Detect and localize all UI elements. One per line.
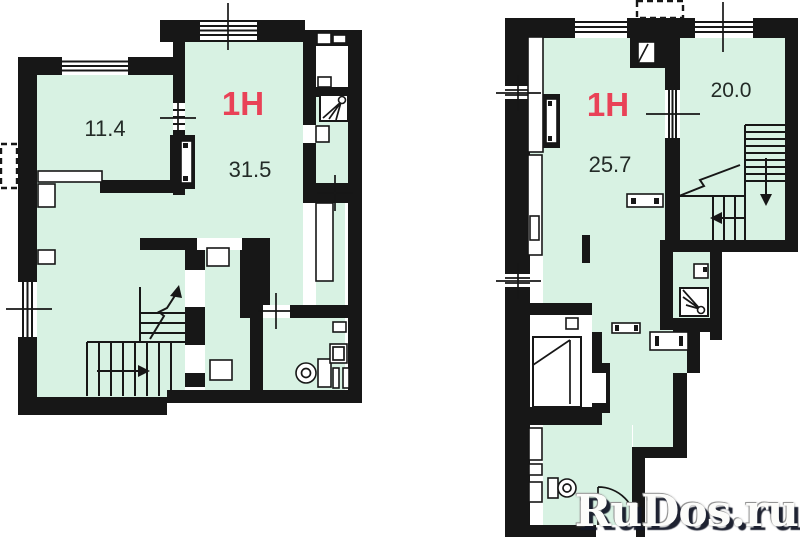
floor-plan-canvas: 1H 11.4 31.5 <box>0 0 800 538</box>
radiator-icon <box>529 428 542 460</box>
watermark-logo: RuDos.ru <box>575 490 798 534</box>
cabinet-icon <box>38 250 55 264</box>
cabinet-icon <box>333 368 339 388</box>
sink-icon <box>210 360 232 380</box>
cabinet-icon <box>38 184 55 207</box>
shower-icon <box>320 95 348 121</box>
bed-icon <box>533 337 581 407</box>
unit-label: 1H <box>222 85 264 122</box>
dashed-annex-icon <box>1 144 17 188</box>
radiator-icon <box>529 464 542 475</box>
wardrobe-icon <box>528 37 543 152</box>
cabinet-icon <box>38 171 102 182</box>
door-opening <box>303 125 316 143</box>
door-opening <box>185 345 205 373</box>
dashed-annex-icon <box>637 1 683 18</box>
shelf-icon <box>317 33 331 44</box>
room-area-label: 20.0 <box>711 79 752 102</box>
cabinet-icon <box>343 368 349 388</box>
right-floor-plan: 1H 25.7 20.0 <box>496 1 798 537</box>
duct-icon <box>316 203 333 281</box>
left-floor-plan: 1H 11.4 31.5 <box>1 3 362 415</box>
room-area-label: 25.7 <box>589 152 632 177</box>
sink-icon <box>318 77 331 87</box>
room-area-label: 11.4 <box>84 116 125 141</box>
shower-icon <box>680 288 708 316</box>
room-area-label: 31.5 <box>229 157 272 182</box>
cabinet-icon <box>530 216 539 240</box>
unit-label: 1H <box>587 86 629 123</box>
shelf-icon <box>333 35 346 43</box>
cabinet-icon <box>333 322 346 332</box>
toilet-icon <box>548 478 576 498</box>
desk-icon <box>566 318 578 329</box>
door-leaf-icon <box>316 126 329 142</box>
door-opening <box>185 270 205 307</box>
cabinet-icon <box>207 248 229 266</box>
room-fill <box>633 373 678 447</box>
floor-plans-drawing: 1H 11.4 31.5 <box>0 0 800 538</box>
radiator-icon <box>529 482 542 502</box>
